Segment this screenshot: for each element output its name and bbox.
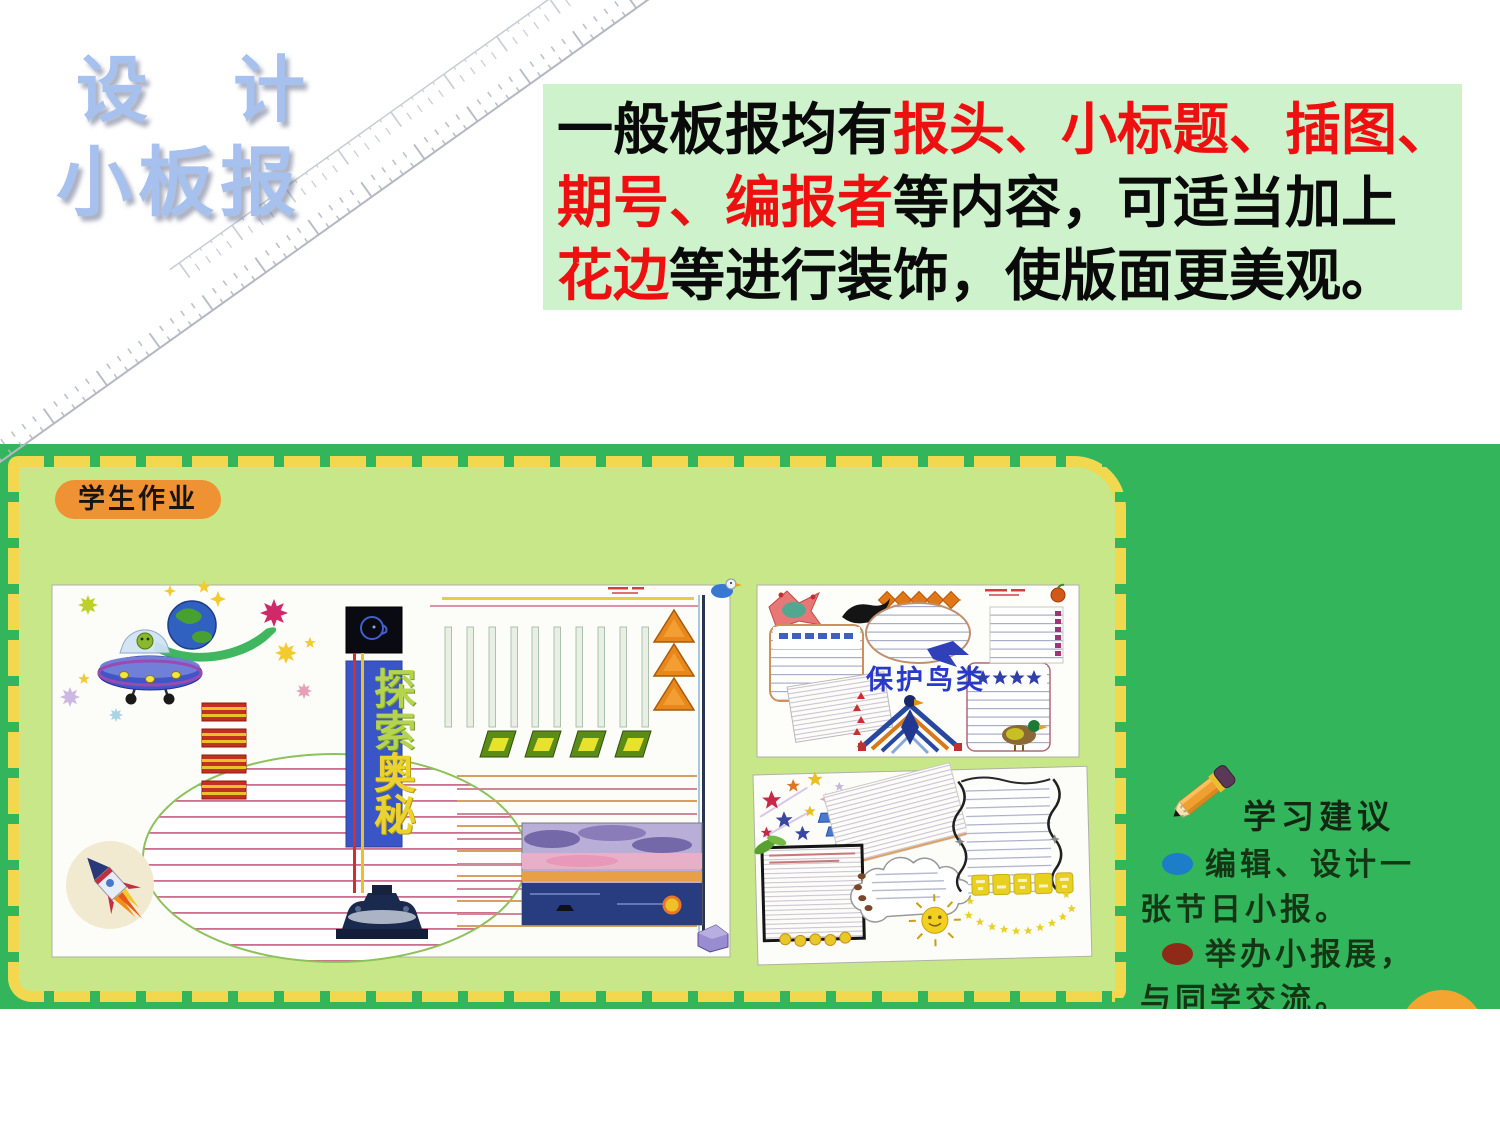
darkred-bullet-icon [1162, 943, 1193, 965]
intro-text-panel: 一般板报均有报头、小标题、插图、 期号、编报者等内容，可适当加上 花边等进行装饰… [543, 84, 1462, 310]
intro-line1-black: 一般板报均有 [557, 98, 893, 161]
pencil-icon [1167, 764, 1237, 826]
suggestions-title: 学习建议 [1243, 790, 1395, 838]
explore-banner-title: 探 索 奥 秘 [370, 669, 420, 837]
blue-bullet-icon [1162, 853, 1193, 875]
intro-line-1: 一般板报均有报头、小标题、插图、 [557, 93, 1462, 166]
intro-line2-red: 期号、编报者 [557, 171, 893, 234]
dashed-border-left [8, 456, 19, 1002]
explore-char-3: 奥 [370, 753, 420, 795]
student-work-label: 学生作业 [55, 480, 221, 519]
page-title: 设 计 小板报 [76, 50, 335, 225]
explore-char-4: 秘 [370, 795, 420, 837]
explore-char-2: 索 [370, 711, 420, 753]
dashed-border-right [1115, 456, 1126, 1002]
suggestion-item-1: 编辑、设计一张节日小报。 [1140, 843, 1440, 933]
suggestion-item-2: 举办小报展，与同学交流。 [1140, 933, 1440, 1009]
textbook-scan-region: 学生作业 [0, 444, 1500, 1009]
intro-line2-black: 等内容，可适当加上 [893, 171, 1397, 234]
intro-line3-black: 等进行装饰，使版面更美观。 [669, 244, 1397, 307]
intro-line-2: 期号、编报者等内容，可适当加上 [557, 166, 1462, 239]
explore-char-1: 探 [370, 669, 420, 711]
intro-line1-red: 报头、小标题、插图、 [893, 98, 1453, 161]
birds-poster-title: 保护鸟类 [866, 658, 986, 697]
page-title-line1: 设 计 [76, 50, 335, 129]
intro-line3-red: 花边 [557, 244, 669, 307]
intro-line-3: 花边等进行装饰，使版面更美观。 [557, 239, 1462, 312]
textbook-page-panel [8, 456, 1126, 1002]
page-title-line2: 小板报 [56, 141, 335, 225]
